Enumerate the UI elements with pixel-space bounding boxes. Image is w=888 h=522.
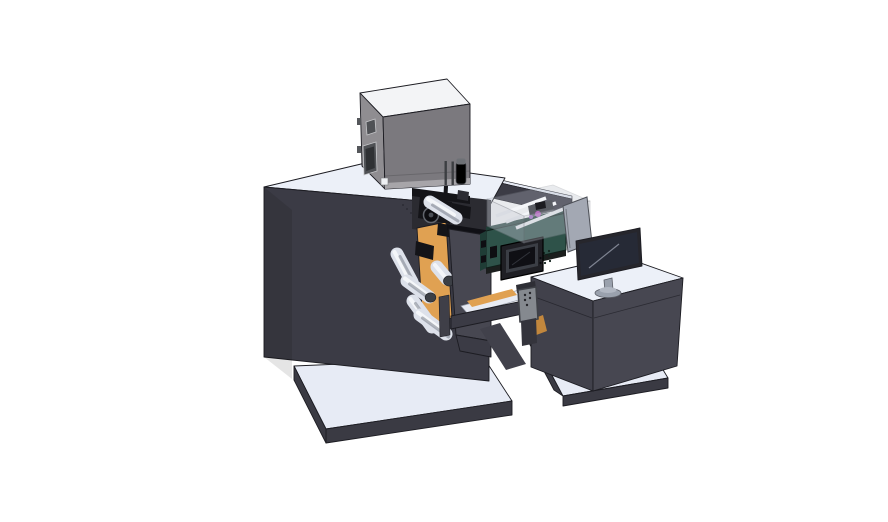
vent-slot bbox=[445, 161, 447, 185]
hinge-tab bbox=[357, 118, 361, 125]
operator-desk bbox=[531, 256, 683, 391]
top-cabinet bbox=[357, 79, 470, 189]
latch-plate bbox=[381, 178, 388, 185]
panel-screw bbox=[410, 212, 412, 214]
supply-cylinder bbox=[456, 162, 466, 184]
cad-viewport bbox=[0, 0, 888, 522]
window-upper bbox=[366, 119, 376, 135]
vent-slot bbox=[452, 162, 454, 186]
hmi-button bbox=[539, 262, 541, 264]
machine-assembly-render bbox=[0, 0, 888, 522]
pendant-control bbox=[516, 281, 538, 346]
panel-screw bbox=[402, 204, 404, 206]
panel-screw bbox=[406, 208, 408, 210]
hinge-tab bbox=[357, 146, 361, 153]
hmi-button bbox=[539, 257, 541, 259]
